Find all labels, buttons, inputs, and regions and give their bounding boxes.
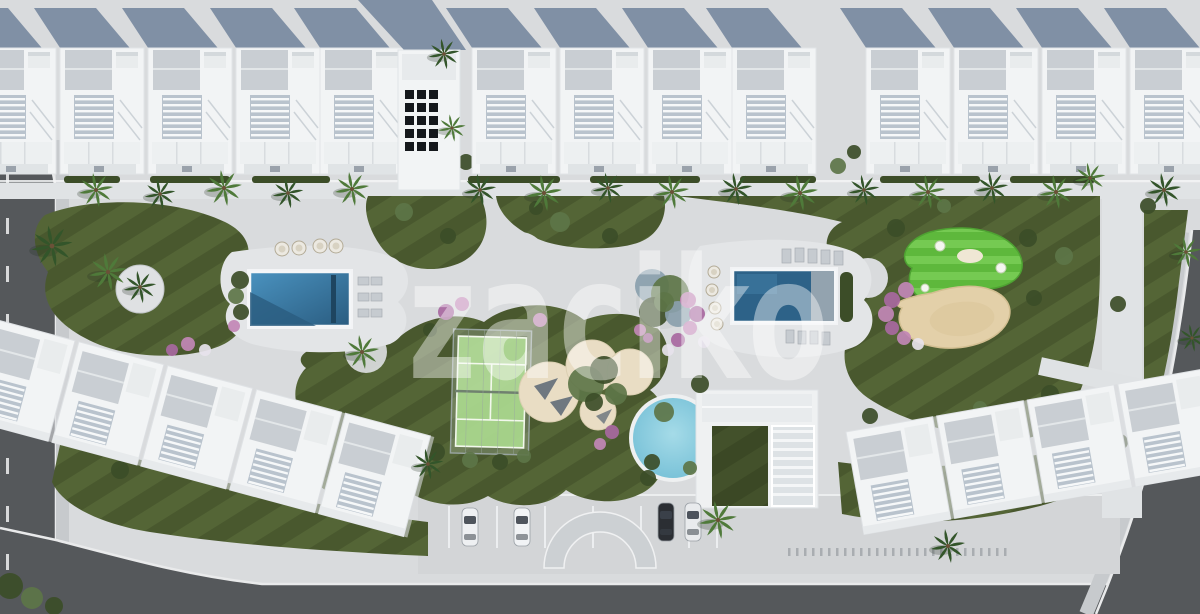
hedge	[840, 272, 853, 322]
shrub	[602, 228, 618, 244]
golf-hole	[921, 284, 929, 292]
aerial-render-canvas: zaciko	[0, 0, 1200, 614]
flower-bush	[680, 292, 696, 308]
apartment-building	[0, 48, 56, 174]
shrub	[862, 408, 878, 424]
flower-bush	[594, 438, 606, 450]
shrub	[231, 271, 249, 289]
shrub	[937, 199, 951, 213]
shrub	[887, 219, 905, 237]
site-plan-svg	[0, 0, 1200, 614]
apartment-building	[1042, 48, 1126, 174]
flower-bush	[228, 320, 240, 332]
flower-bush	[166, 344, 178, 356]
shrub	[605, 383, 627, 405]
shrub	[640, 470, 656, 486]
flower-bush	[634, 324, 646, 336]
apartment-building	[560, 48, 644, 174]
apartment-building	[846, 416, 955, 534]
shrub	[550, 212, 570, 232]
shrub	[111, 461, 129, 479]
apartment-building	[148, 48, 232, 174]
shrub	[233, 304, 249, 320]
shrub	[440, 228, 456, 244]
parked-car	[462, 508, 478, 546]
golf-hole	[996, 263, 1006, 273]
parked-car	[514, 508, 530, 546]
golf-hole	[935, 241, 945, 251]
shrub	[228, 288, 244, 304]
shrub	[1026, 290, 1042, 306]
shrub	[847, 145, 861, 159]
shrub	[654, 402, 674, 422]
green-sand-patch	[957, 249, 983, 263]
shrub	[585, 393, 603, 411]
shrub	[830, 158, 846, 174]
shrub	[644, 454, 660, 470]
shrub	[1019, 229, 1037, 247]
flower-bush	[912, 338, 924, 350]
pergola-roof	[772, 426, 814, 506]
apartment-building	[954, 48, 1038, 174]
apartment-building	[866, 48, 950, 174]
apartment-building	[1027, 384, 1136, 502]
left-pool-area	[220, 239, 408, 352]
flower-bush	[438, 304, 454, 320]
clubhouse-building	[696, 390, 818, 508]
apartment-building	[732, 48, 816, 174]
flower-bush	[689, 306, 705, 322]
top-building-row	[0, 48, 1200, 174]
shrub	[517, 449, 531, 463]
apartment-building	[236, 48, 320, 174]
apartment-building	[60, 48, 144, 174]
flower-bush	[878, 306, 894, 322]
shrub	[492, 454, 508, 470]
flower-bush	[884, 292, 900, 308]
flower-bush	[885, 321, 899, 335]
shrub	[1055, 247, 1073, 265]
hedge	[880, 176, 980, 183]
flower-bush	[643, 333, 653, 343]
hedge	[252, 176, 330, 183]
flower-bush	[533, 313, 547, 327]
shrub	[462, 452, 478, 468]
flower-bush	[455, 297, 469, 311]
apartment-building	[1130, 48, 1200, 174]
shrub	[590, 356, 618, 384]
shrub	[1110, 296, 1126, 312]
hedge	[740, 176, 816, 183]
shrub	[691, 375, 709, 393]
flower-bush	[683, 321, 697, 335]
flower-bush	[181, 337, 195, 351]
hedge	[64, 176, 120, 183]
flower-bush	[671, 333, 685, 347]
shrub	[1140, 198, 1156, 214]
path-circle	[494, 232, 546, 284]
shrub	[683, 461, 697, 475]
apartment-building	[472, 48, 556, 174]
hedge	[150, 176, 230, 183]
apartment-building	[320, 48, 404, 174]
flower-bush	[698, 336, 710, 348]
parked-car	[658, 503, 674, 541]
right-pool-area	[688, 240, 872, 358]
pool-grate	[331, 275, 336, 323]
shrub	[654, 292, 674, 312]
shrub	[395, 203, 413, 221]
flower-bush	[897, 331, 911, 345]
pool-shadow	[811, 271, 834, 321]
apartment-building	[648, 48, 732, 174]
flower-bush	[605, 425, 619, 439]
flower-bush	[662, 344, 674, 356]
flower-bush	[898, 282, 914, 298]
shrub	[21, 587, 43, 609]
shrub	[423, 323, 437, 337]
hedge	[468, 176, 560, 183]
flower-bush	[199, 344, 211, 356]
apartment-building	[937, 400, 1046, 518]
